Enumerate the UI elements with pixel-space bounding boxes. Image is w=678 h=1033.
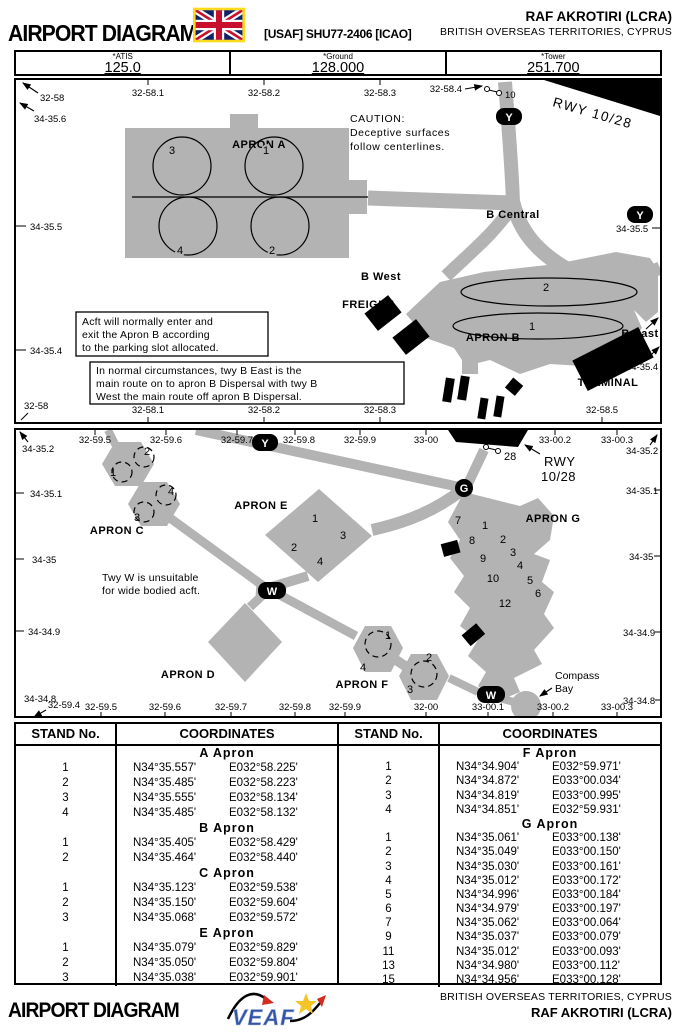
- footer-airport: RAF AKROTIRI (LCRA): [440, 1005, 672, 1020]
- tick-label: 34-35.4: [30, 346, 62, 357]
- svg-text:Deceptive surfaces: Deceptive surfaces: [350, 127, 450, 139]
- twy-b-route-note: In normal circumstances, twy B East is t…: [90, 362, 404, 404]
- territory-label: BRITISH OVERSEAS TERRITORIES, CYPRUS: [440, 26, 672, 38]
- tick-label: 32-58.1: [132, 405, 164, 416]
- stand-number: 1: [16, 761, 117, 776]
- apron-group-label: F Apron: [440, 746, 660, 760]
- stand-coordinate-row: 3N34°35.030'E033°00.161': [339, 860, 660, 874]
- svg-text:12: 12: [499, 598, 511, 610]
- latitude-value: N34°35.030': [440, 860, 552, 874]
- svg-text:1: 1: [482, 520, 488, 532]
- stand-coordinate-row: 3N34°35.068'E032°59.572': [16, 911, 337, 926]
- stand-number: 2: [339, 845, 440, 859]
- stand-cell: [16, 926, 117, 941]
- apron-b-entry-note: Acft will normally enter and exit the Ap…: [76, 312, 268, 356]
- coordinates-cell: N34°35.012'E033°00.093': [440, 945, 660, 959]
- apron-group-row: F Apron: [339, 746, 660, 760]
- svg-text:8: 8: [469, 535, 475, 547]
- stand-cell: [339, 817, 440, 831]
- svg-text:4: 4: [517, 560, 523, 572]
- latitude-value: N34°35.049': [440, 845, 552, 859]
- tick-label: 34-35.4: [626, 362, 658, 373]
- stand-number: 2: [16, 956, 117, 971]
- coordinates-cell: N34°34.819'E033°00.995': [440, 789, 660, 803]
- stand-coordinate-row: 11N34°35.012'E033°00.093': [339, 945, 660, 959]
- apron-group-label: B Apron: [117, 821, 337, 836]
- stand-coordinate-row: 13N34°34.980'E033°00.112': [339, 959, 660, 973]
- stand-coordinates-tables: STAND No. COORDINATES A Apron1N34°35.557…: [14, 722, 662, 985]
- svg-text:main route on to apron B Dispe: main route on to apron B Dispersal with …: [96, 378, 317, 390]
- latitude-value: N34°34.980': [440, 959, 552, 973]
- longitude-value: E033°00.150': [552, 845, 621, 859]
- tick-label: 32-59.7: [215, 702, 247, 713]
- stand-number: 4: [339, 803, 440, 817]
- stand-no-header: STAND No.: [16, 724, 117, 744]
- apron-a-label: APRON A: [232, 139, 286, 151]
- longitude-value: E032°59.804': [229, 956, 298, 971]
- coordinates-cell: N34°35.061'E033°00.138': [440, 831, 660, 845]
- stand-number: 3: [339, 860, 440, 874]
- latitude-value: N34°35.485': [117, 806, 229, 821]
- coordinates-cell: N34°35.050'E032°59.804': [117, 956, 337, 971]
- stand-coordinate-row: 2N34°35.464'E032°58.440': [16, 851, 337, 866]
- tick-label: 32-59.5: [79, 435, 111, 446]
- stand-coordinate-row: 1N34°35.123'E032°59.538': [16, 881, 337, 896]
- svg-text:5: 5: [527, 575, 533, 587]
- svg-text:West the main route off apron: West the main route off apron B Dispersa…: [96, 391, 302, 403]
- stand-coordinate-row: 2N34°35.485'E032°58.223': [16, 776, 337, 791]
- longitude-value: E032°58.223': [229, 776, 298, 791]
- twy-w-marker: W: [258, 582, 286, 599]
- svg-text:10: 10: [487, 573, 499, 585]
- runway-10-28-segment: [448, 430, 528, 447]
- svg-text:to the parking slot allocated.: to the parking slot allocated.: [82, 342, 219, 354]
- runway-label-line1: RWY: [544, 454, 576, 469]
- longitude-value: E032°59.604': [229, 896, 298, 911]
- stand-number: 3: [16, 791, 117, 806]
- tick-label: 34-35: [32, 555, 56, 566]
- latitude-value: N34°35.012': [440, 945, 552, 959]
- svg-text:4: 4: [360, 662, 366, 674]
- longitude-value: E032°59.901': [229, 971, 298, 986]
- svg-text:7: 7: [455, 515, 461, 527]
- tick-label: 34-35.1: [30, 489, 62, 500]
- airport-diagram-page: AIRPORT DIAGRAM [USAF] SHU77-2406 [ICAO]…: [0, 0, 678, 1033]
- svg-text:3: 3: [407, 684, 413, 696]
- coordinates-cell: N34°35.030'E033°00.161': [440, 860, 660, 874]
- twy-w-note: for wide bodied acft.: [102, 585, 200, 597]
- tick-label: 34-35.1: [626, 486, 658, 497]
- apron-d-pad: [208, 603, 282, 682]
- coordinates-cell: N34°35.464'E032°58.440': [117, 851, 337, 866]
- svg-text:2: 2: [144, 446, 150, 458]
- svg-text:2: 2: [291, 542, 297, 554]
- tick-label: 32-59.8: [283, 435, 315, 446]
- stand-coordinate-row: 1N34°35.405'E032°58.429': [16, 836, 337, 851]
- tick-label: 32-58.2: [248, 405, 280, 416]
- freight-label: FREIGHT: [342, 299, 394, 311]
- latitude-value: N34°35.062': [440, 916, 552, 930]
- svg-text:4: 4: [317, 556, 323, 568]
- tick-label: 33-00.3: [601, 435, 633, 446]
- coordinates-cell: N34°34.872'E033°00.034': [440, 774, 660, 788]
- stand-number: 6: [339, 902, 440, 916]
- twy-w-label: W: [267, 586, 278, 598]
- latitude-value: N34°35.485': [117, 776, 229, 791]
- stand-number: 3: [16, 911, 117, 926]
- stand-cell: [16, 866, 117, 881]
- latitude-value: N34°35.555': [117, 791, 229, 806]
- footer-territory: BRITISH OVERSEAS TERRITORIES, CYPRUS: [440, 991, 672, 1003]
- stand-cell: [339, 746, 440, 760]
- stand-number: 2: [16, 851, 117, 866]
- svg-text:3: 3: [134, 512, 140, 524]
- twy-w-label: W: [486, 690, 497, 702]
- table-header: STAND No. COORDINATES: [16, 724, 337, 746]
- procedure-code: [USAF] SHU77-2406 [ICAO]: [264, 27, 412, 41]
- tick-label: 34-35.5: [30, 222, 62, 233]
- stand-no-header: STAND No.: [339, 724, 440, 744]
- coordinates-header: COORDINATES: [117, 724, 337, 744]
- stand-number: 11: [339, 945, 440, 959]
- latitude-value: N34°35.050': [117, 956, 229, 971]
- latitude-value: N34°34.979': [440, 902, 552, 916]
- coordinates-cell: N34°35.012'E033°00.172': [440, 874, 660, 888]
- tick-label: 32-59.6: [150, 435, 182, 446]
- stand-number: 4: [16, 806, 117, 821]
- longitude-value: E032°58.132': [229, 806, 298, 821]
- tick-label: 32-00: [414, 702, 438, 713]
- freq-tower: *Tower 251.700: [445, 52, 660, 74]
- stand-cell: [16, 746, 117, 761]
- svg-text:Compass: Compass: [555, 670, 599, 682]
- longitude-value: E033°00.161': [552, 860, 621, 874]
- svg-text:2: 2: [426, 652, 432, 664]
- apron-group-row: C Apron: [16, 866, 337, 881]
- longitude-value: E033°00.034': [552, 774, 621, 788]
- svg-text:follow centerlines.: follow centerlines.: [350, 141, 445, 153]
- apron-d-label: APRON D: [161, 669, 215, 681]
- longitude-value: E033°00.172': [552, 874, 621, 888]
- longitude-value: E033°00.064': [552, 916, 621, 930]
- stand-number: 1: [339, 831, 440, 845]
- tick-label: 32-59.4: [48, 700, 80, 711]
- latitude-value: N34°34.872': [440, 774, 552, 788]
- twy-y-label: Y: [636, 210, 644, 222]
- stand-coordinate-row: 2N34°35.150'E032°59.604': [16, 896, 337, 911]
- longitude-value: E032°59.538': [229, 881, 298, 896]
- coordinates-cell: N34°35.485'E032°58.132': [117, 806, 337, 821]
- tick-label: 33-00.1: [472, 702, 504, 713]
- apron-group-label: A Apron: [117, 746, 337, 761]
- apron-f-label: APRON F: [336, 679, 389, 691]
- tick-label: 32-59.7: [221, 435, 253, 446]
- stand-coordinate-row: 4N34°35.485'E032°58.132': [16, 806, 337, 821]
- caution-note: CAUTION: Deceptive surfaces follow cente…: [350, 113, 450, 153]
- top-map-panel: RWY 10/28 10 Y Y CAUTION: Deceptive surf…: [14, 78, 662, 424]
- tick-label: 33-00.2: [539, 435, 571, 446]
- latitude-value: N34°35.557': [117, 761, 229, 776]
- twy-b-central-label: B Central: [486, 209, 539, 221]
- runway-pointer-arrow: [525, 445, 540, 454]
- coordinates-cell: N34°34.996'E033°00.184': [440, 888, 660, 902]
- runway-label-line2: 10/28: [541, 469, 576, 484]
- coordinates-cell: N34°34.851'E032°59.931': [440, 803, 660, 817]
- svg-text:1: 1: [529, 321, 535, 333]
- tick-label: 34-35.2: [626, 446, 658, 457]
- apron-b-label: APRON B: [466, 332, 520, 344]
- footer-title: AIRPORT DIAGRAM: [8, 999, 179, 1023]
- twy-y-marker: Y: [627, 206, 653, 223]
- svg-text:3: 3: [169, 145, 175, 157]
- stand-coordinate-row: 1N34°34.904'E032°59.971': [339, 760, 660, 774]
- svg-text:Acft will normally enter and: Acft will normally enter and: [82, 316, 213, 328]
- twy-y-marker: Y: [252, 434, 278, 451]
- longitude-value: E033°00.197': [552, 902, 621, 916]
- apron-e-label: APRON E: [234, 500, 288, 512]
- svg-text:exit the Apron B according: exit the Apron B according: [82, 329, 210, 341]
- twy-y-label: Y: [261, 438, 269, 450]
- freq-tower-value: 251.700: [447, 61, 660, 75]
- stand-coordinate-row: 3N34°34.819'E033°00.995': [339, 789, 660, 803]
- stand-number: 2: [16, 776, 117, 791]
- tick-label: 32-59.5: [85, 702, 117, 713]
- svg-text:6: 6: [535, 588, 541, 600]
- tick-label: 32-59.6: [149, 702, 181, 713]
- stand-coordinate-row: 3N34°35.555'E032°58.134': [16, 791, 337, 806]
- svg-text:1: 1: [312, 513, 318, 525]
- threshold-label: 28: [504, 451, 516, 463]
- tick-label: 32-58.5: [586, 405, 618, 416]
- twy-y-label: Y: [505, 112, 513, 124]
- uk-flag-icon: [193, 7, 245, 43]
- stand-number: 9: [339, 930, 440, 944]
- longitude-value: E032°58.134': [229, 791, 298, 806]
- svg-text:4: 4: [177, 245, 183, 257]
- stand-number: 13: [339, 959, 440, 973]
- latitude-value: N34°34.819': [440, 789, 552, 803]
- svg-text:3: 3: [340, 530, 346, 542]
- apron-group-row: G Apron: [339, 817, 660, 831]
- airport-name: RAF AKROTIRI (LCRA): [440, 9, 672, 24]
- table-body: A Apron1N34°35.557'E032°58.225'2N34°35.4…: [16, 746, 337, 986]
- apron-c-label: APRON C: [90, 525, 144, 537]
- svg-text:2: 2: [543, 282, 549, 294]
- tick-label: 34-35.5: [616, 224, 648, 235]
- threshold-label: 10: [505, 90, 516, 101]
- svg-text:1: 1: [263, 145, 269, 157]
- twy-y-marker: Y: [496, 108, 522, 125]
- compass-bay-callout: Compass Bay: [540, 670, 599, 696]
- coordinates-cell: N34°34.904'E032°59.971': [440, 760, 660, 774]
- longitude-value: E032°58.440': [229, 851, 298, 866]
- latitude-value: N34°35.079': [117, 941, 229, 956]
- tick-label: 33-00.2: [537, 702, 569, 713]
- longitude-value: E033°00.138': [552, 831, 621, 845]
- tick-label: 32-58.4: [430, 84, 462, 95]
- tick-label: 32-58.3: [364, 405, 396, 416]
- svg-text:Bay: Bay: [555, 683, 574, 695]
- tick-label: 32-58.3: [364, 88, 396, 99]
- coordinates-table-right: STAND No. COORDINATES F Apron1N34°34.904…: [337, 722, 662, 985]
- apron-group-row: A Apron: [16, 746, 337, 761]
- longitude-value: E032°58.225': [229, 761, 298, 776]
- longitude-value: E032°58.429': [229, 836, 298, 851]
- svg-text:In normal circumstances, twy B: In normal circumstances, twy B East is t…: [96, 365, 302, 377]
- stand-coordinate-row: 6N34°34.979'E033°00.197': [339, 902, 660, 916]
- stand-number: 5: [339, 888, 440, 902]
- tick-label: 34-34.9: [623, 628, 655, 639]
- twy-b-east-label: B East: [621, 328, 658, 340]
- stand-number: 2: [339, 774, 440, 788]
- coordinates-cell: N34°35.062'E033°00.064': [440, 916, 660, 930]
- stand-number: 1: [339, 760, 440, 774]
- stand-coordinate-row: 2N34°35.049'E033°00.150': [339, 845, 660, 859]
- stand-coordinate-row: 1N34°35.079'E032°59.829': [16, 941, 337, 956]
- apron-group-row: E Apron: [16, 926, 337, 941]
- tick-label: 34-34.9: [28, 627, 60, 638]
- coordinates-cell: N34°35.557'E032°58.225': [117, 761, 337, 776]
- latitude-value: N34°35.012': [440, 874, 552, 888]
- latitude-value: N34°35.150': [117, 896, 229, 911]
- longitude-value: E032°59.829': [229, 941, 298, 956]
- stand-number: 1: [16, 881, 117, 896]
- tick-label: 33-00: [414, 435, 438, 446]
- longitude-value: E032°59.572': [229, 911, 298, 926]
- twy-w-note: Twy W is unsuitable: [102, 572, 199, 584]
- freq-atis-value: 125.0: [16, 61, 229, 75]
- freq-atis: *ATIS 125.0: [16, 52, 229, 74]
- longitude-value: E033°00.079': [552, 930, 621, 944]
- tick-label: 32-59.8: [279, 702, 311, 713]
- footer: AIRPORT DIAGRAM VEAF BRITISH OVERSEAS TE…: [0, 985, 678, 1033]
- coordinates-cell: N34°35.079'E032°59.829': [117, 941, 337, 956]
- stand-number: 3: [339, 789, 440, 803]
- twy-w-marker: W: [477, 686, 505, 703]
- freq-ground-value: 128.000: [231, 61, 444, 75]
- veaf-logo: VEAF: [218, 985, 338, 1033]
- longitude-value: E033°00.995': [552, 789, 621, 803]
- stand-coordinate-row: 2N34°35.050'E032°59.804': [16, 956, 337, 971]
- threshold-28: 28: [484, 445, 517, 464]
- stand-number: 4: [339, 874, 440, 888]
- latitude-value: N34°34.996': [440, 888, 552, 902]
- stand-coordinate-row: 7N34°35.062'E033°00.064': [339, 916, 660, 930]
- coordinates-cell: N34°35.485'E032°58.223': [117, 776, 337, 791]
- tick-label: 33-00.3: [601, 702, 633, 713]
- page-title: AIRPORT DIAGRAM: [8, 20, 196, 47]
- stand-coordinate-row: 4N34°35.012'E033°00.172': [339, 874, 660, 888]
- coordinates-cell: N34°35.150'E032°59.604': [117, 896, 337, 911]
- coordinates-cell: N34°35.555'E032°58.134': [117, 791, 337, 806]
- apron-group-label: C Apron: [117, 866, 337, 881]
- svg-text:4: 4: [168, 486, 174, 498]
- latitude-value: N34°35.068': [117, 911, 229, 926]
- latitude-value: N34°34.851': [440, 803, 552, 817]
- latitude-value: N34°35.061': [440, 831, 552, 845]
- longitude-value: E033°00.184': [552, 888, 621, 902]
- latitude-value: N34°35.038': [117, 971, 229, 986]
- tick-label: 34-35: [629, 552, 653, 563]
- svg-text:1: 1: [385, 630, 391, 642]
- coordinates-cell: N34°34.980'E033°00.112': [440, 959, 660, 973]
- coordinates-cell: N34°35.037'E033°00.079': [440, 930, 660, 944]
- svg-text:CAUTION:: CAUTION:: [350, 113, 405, 125]
- frequency-strip: *ATIS 125.0 *Ground 128.000 *Tower 251.7…: [14, 50, 662, 76]
- bottom-map-panel: 28 RWY 10/28 Y G W W APRON C APRON E APR…: [14, 428, 662, 718]
- coordinates-cell: N34°35.405'E032°58.429': [117, 836, 337, 851]
- top-map: RWY 10/28 10 Y Y CAUTION: Deceptive surf…: [16, 80, 660, 422]
- stand-coordinate-row: 4N34°34.851'E032°59.931': [339, 803, 660, 817]
- svg-text:2: 2: [500, 534, 506, 546]
- latitude-value: N34°35.405': [117, 836, 229, 851]
- stand-coordinate-row: 1N34°35.061'E033°00.138': [339, 831, 660, 845]
- svg-text:2: 2: [269, 245, 275, 257]
- latitude-value: N34°35.123': [117, 881, 229, 896]
- tick-label: 32-59.9: [344, 435, 376, 446]
- stand-number: 1: [16, 941, 117, 956]
- stand-number: 3: [16, 971, 117, 986]
- latitude-value: N34°35.037': [440, 930, 552, 944]
- terminal-label: TERMINAL: [578, 377, 639, 389]
- coordinates-cell: N34°35.049'E033°00.150': [440, 845, 660, 859]
- svg-text:1: 1: [110, 467, 116, 479]
- svg-text:3: 3: [510, 547, 516, 559]
- bottom-map: 28 RWY 10/28 Y G W W APRON C APRON E APR…: [16, 430, 660, 716]
- stand-coordinate-row: 1N34°35.557'E032°58.225': [16, 761, 337, 776]
- tick-label: 32-58: [24, 401, 48, 412]
- table-header: STAND No. COORDINATES: [339, 724, 660, 746]
- coordinates-table-left: STAND No. COORDINATES A Apron1N34°35.557…: [14, 722, 339, 985]
- tick-label: 34-35.2: [22, 444, 54, 455]
- coordinates-cell: N34°35.123'E032°59.538': [117, 881, 337, 896]
- twy-g-marker: G: [455, 479, 473, 497]
- veaf-logo-text: VEAF: [232, 1005, 295, 1030]
- apron-g-label: APRON G: [526, 513, 581, 525]
- stand-number: 1: [16, 836, 117, 851]
- apron-group-label: G Apron: [440, 817, 660, 831]
- svg-text:9: 9: [480, 553, 486, 565]
- table-body: F Apron1N34°34.904'E032°59.971'2N34°34.8…: [339, 746, 660, 987]
- stand-number: 2: [16, 896, 117, 911]
- stand-coordinate-row: 2N34°34.872'E033°00.034': [339, 774, 660, 788]
- longitude-value: E032°59.931': [552, 803, 621, 817]
- coordinates-cell: N34°34.979'E033°00.197': [440, 902, 660, 916]
- tick-label: 32-58.1: [132, 88, 164, 99]
- stand-cell: [16, 821, 117, 836]
- twy-g-label: G: [460, 483, 469, 495]
- coordinates-cell: N34°35.068'E032°59.572': [117, 911, 337, 926]
- coordinates-header: COORDINATES: [440, 724, 660, 744]
- latitude-value: N34°35.464': [117, 851, 229, 866]
- stand-coordinate-row: 5N34°34.996'E033°00.184': [339, 888, 660, 902]
- stand-coordinate-row: 3N34°35.038'E032°59.901': [16, 971, 337, 986]
- stand-number: 7: [339, 916, 440, 930]
- tick-label: 32-58.2: [248, 88, 280, 99]
- tick-label: 34-35.6: [34, 114, 66, 125]
- coordinates-cell: N34°35.038'E032°59.901': [117, 971, 337, 986]
- twy-b-west-label: B West: [361, 271, 401, 283]
- tick-label: 32-58: [40, 93, 64, 104]
- freq-ground: *Ground 128.000: [229, 52, 444, 74]
- longitude-value: E033°00.093': [552, 945, 621, 959]
- apron-group-label: E Apron: [117, 926, 337, 941]
- tick-label: 32-59.9: [329, 702, 361, 713]
- latitude-value: N34°34.904': [440, 760, 552, 774]
- stand-coordinate-row: 9N34°35.037'E033°00.079': [339, 930, 660, 944]
- longitude-value: E033°00.112': [552, 959, 620, 973]
- longitude-value: E032°59.971': [552, 760, 621, 774]
